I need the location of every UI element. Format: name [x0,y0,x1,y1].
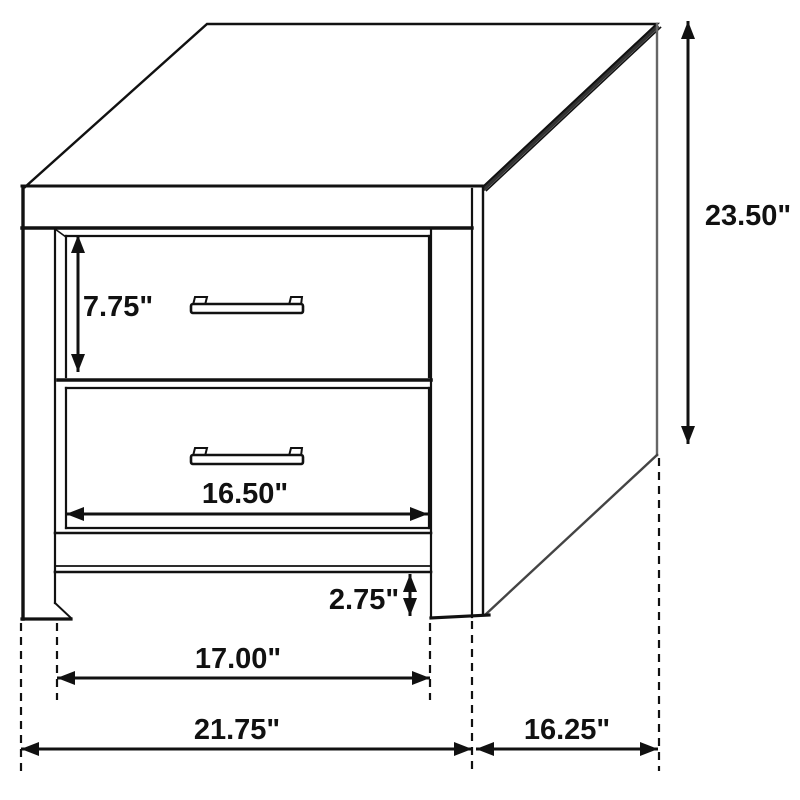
label-leg-height: 2.75" [329,584,399,616]
bottom-rail [55,533,431,572]
label-inner-leg-span: 17.00" [195,643,281,675]
top-face [25,24,661,191]
front-right-leg [431,572,489,618]
top-right-edge [483,24,657,187]
dim-leg-height: 2.75" [329,574,410,616]
dim-drawer-width: 16.50" [66,478,428,514]
dim-overall-width: 21.75" [21,714,472,749]
side-panel-bottom-edge [486,455,657,614]
furniture-dimension-diagram: 7.75" 16.50" 2.75" 17.00" 21.75" 16.25" [0,0,800,800]
dim-overall-height: 23.50" [688,21,791,444]
drawer-1-handle [191,297,303,313]
label-overall-height: 23.50" [705,200,791,232]
label-overall-width: 21.75" [194,714,280,746]
dim-drawer-front-height: 7.75" [78,235,153,372]
dim-side-depth: 16.25" [476,714,658,749]
side-panel [486,24,657,614]
label-drawer-front-height: 7.75" [83,291,153,323]
label-drawer-width: 16.50" [202,478,288,510]
front-left-leg [22,572,71,619]
dimension-annotations: 7.75" 16.50" 2.75" 17.00" 21.75" 16.25" [21,21,791,771]
label-side-depth: 16.25" [524,714,610,746]
drawer-2-handle [191,448,303,464]
dim-inner-leg-span: 17.00" [57,643,430,678]
nightstand-diagram-svg: 7.75" 16.50" 2.75" 17.00" 21.75" 16.25" [0,0,800,800]
front-frame [22,186,483,619]
